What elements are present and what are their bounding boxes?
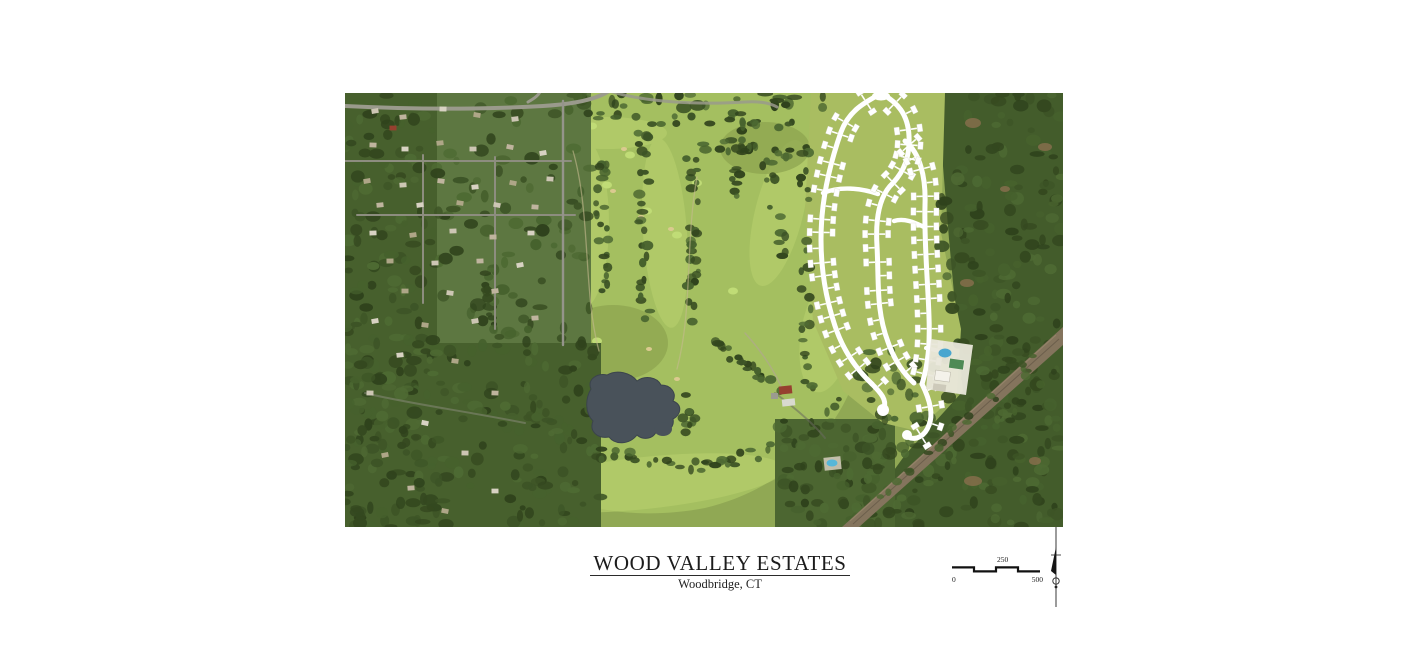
scale-max-label: 500 xyxy=(1032,575,1043,584)
tennis-court xyxy=(948,358,964,370)
scale-bar: 250 0 500 xyxy=(951,556,1043,588)
page-subtitle: Woodbridge, CT xyxy=(520,577,920,592)
scale-mid-label: 250 xyxy=(997,555,1008,564)
north-arrow-icon xyxy=(1047,527,1065,607)
existing-pool xyxy=(823,456,841,471)
plan-sheet: WOOD VALLEY ESTATES Woodbridge, CT 250 0… xyxy=(0,0,1416,672)
scale-bar-graphic xyxy=(951,565,1041,574)
aerial-site-map xyxy=(345,93,1063,527)
aerial-map-image xyxy=(345,93,1063,527)
pool xyxy=(939,349,952,358)
amenity-site xyxy=(926,339,973,395)
page-title: WOOD VALLEY ESTATES xyxy=(590,552,849,576)
scale-zero-label: 0 xyxy=(952,575,956,584)
title-block: WOOD VALLEY ESTATES Woodbridge, CT xyxy=(520,552,920,592)
